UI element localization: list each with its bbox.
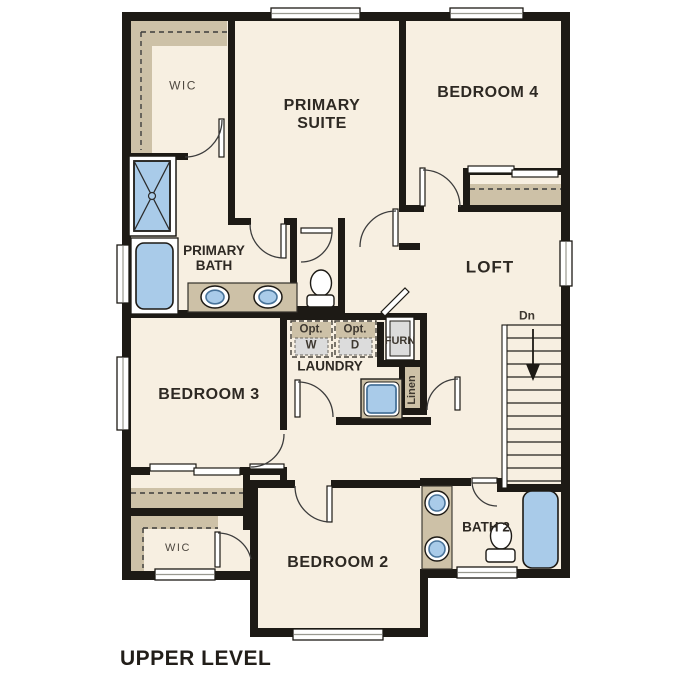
water-closet-door-leaf <box>301 228 332 233</box>
laundry-sink <box>361 379 402 419</box>
bath2-door-leaf <box>472 478 497 483</box>
shower <box>129 156 176 236</box>
plan-title: UPPER LEVEL <box>120 647 271 671</box>
bath2-tub <box>523 491 558 568</box>
wic-bottom-door-leaf <box>215 532 220 567</box>
loft-hall-door-leaf <box>455 377 460 410</box>
primary-suite-door-leaf <box>393 209 398 246</box>
laundry-door-leaf <box>295 380 300 417</box>
primary-tub <box>131 238 178 314</box>
furnace-unit <box>386 317 414 360</box>
primary-bath-door-leaf <box>281 224 286 258</box>
floor-plan: WIC PRIMARY SUITE BEDROOM 4 PRIMARY BATH… <box>0 0 687 687</box>
floor-plan-drawing <box>0 0 687 687</box>
bedroom4-door-leaf <box>420 168 425 206</box>
primary-vanity <box>188 283 297 312</box>
bath2-vanity <box>422 486 452 569</box>
bedroom2-door-leaf <box>327 486 332 522</box>
